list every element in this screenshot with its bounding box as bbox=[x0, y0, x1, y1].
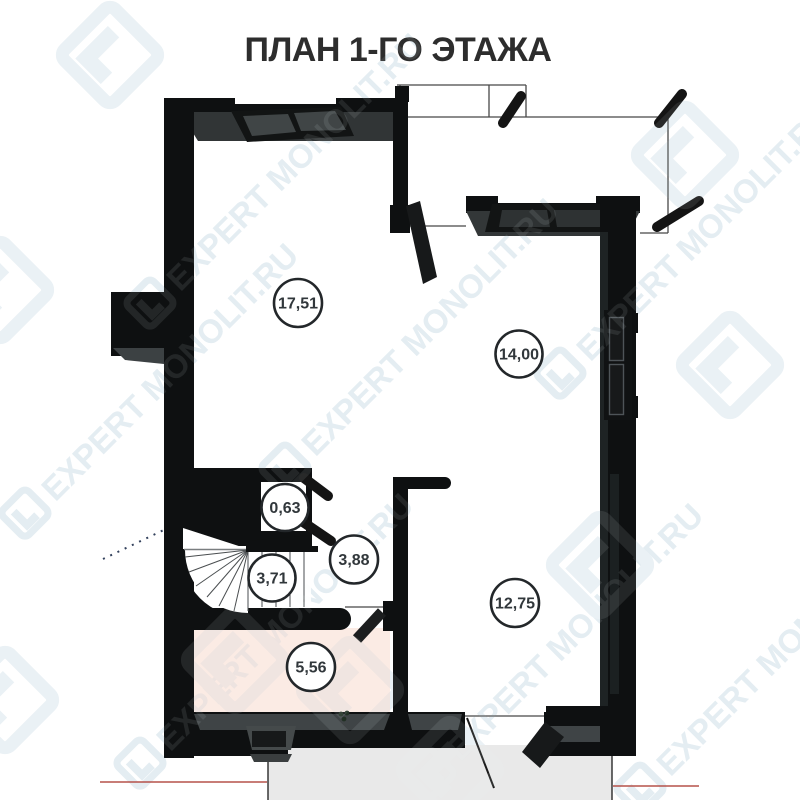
svg-text:12,75: 12,75 bbox=[495, 596, 535, 613]
svg-text:17,51: 17,51 bbox=[278, 296, 318, 313]
svg-text:3,71: 3,71 bbox=[256, 571, 287, 588]
svg-text:3,88: 3,88 bbox=[338, 552, 369, 569]
svg-text:5,56: 5,56 bbox=[295, 660, 326, 677]
svg-text:14,00: 14,00 bbox=[499, 347, 539, 364]
svg-text:0,63: 0,63 bbox=[269, 500, 300, 517]
